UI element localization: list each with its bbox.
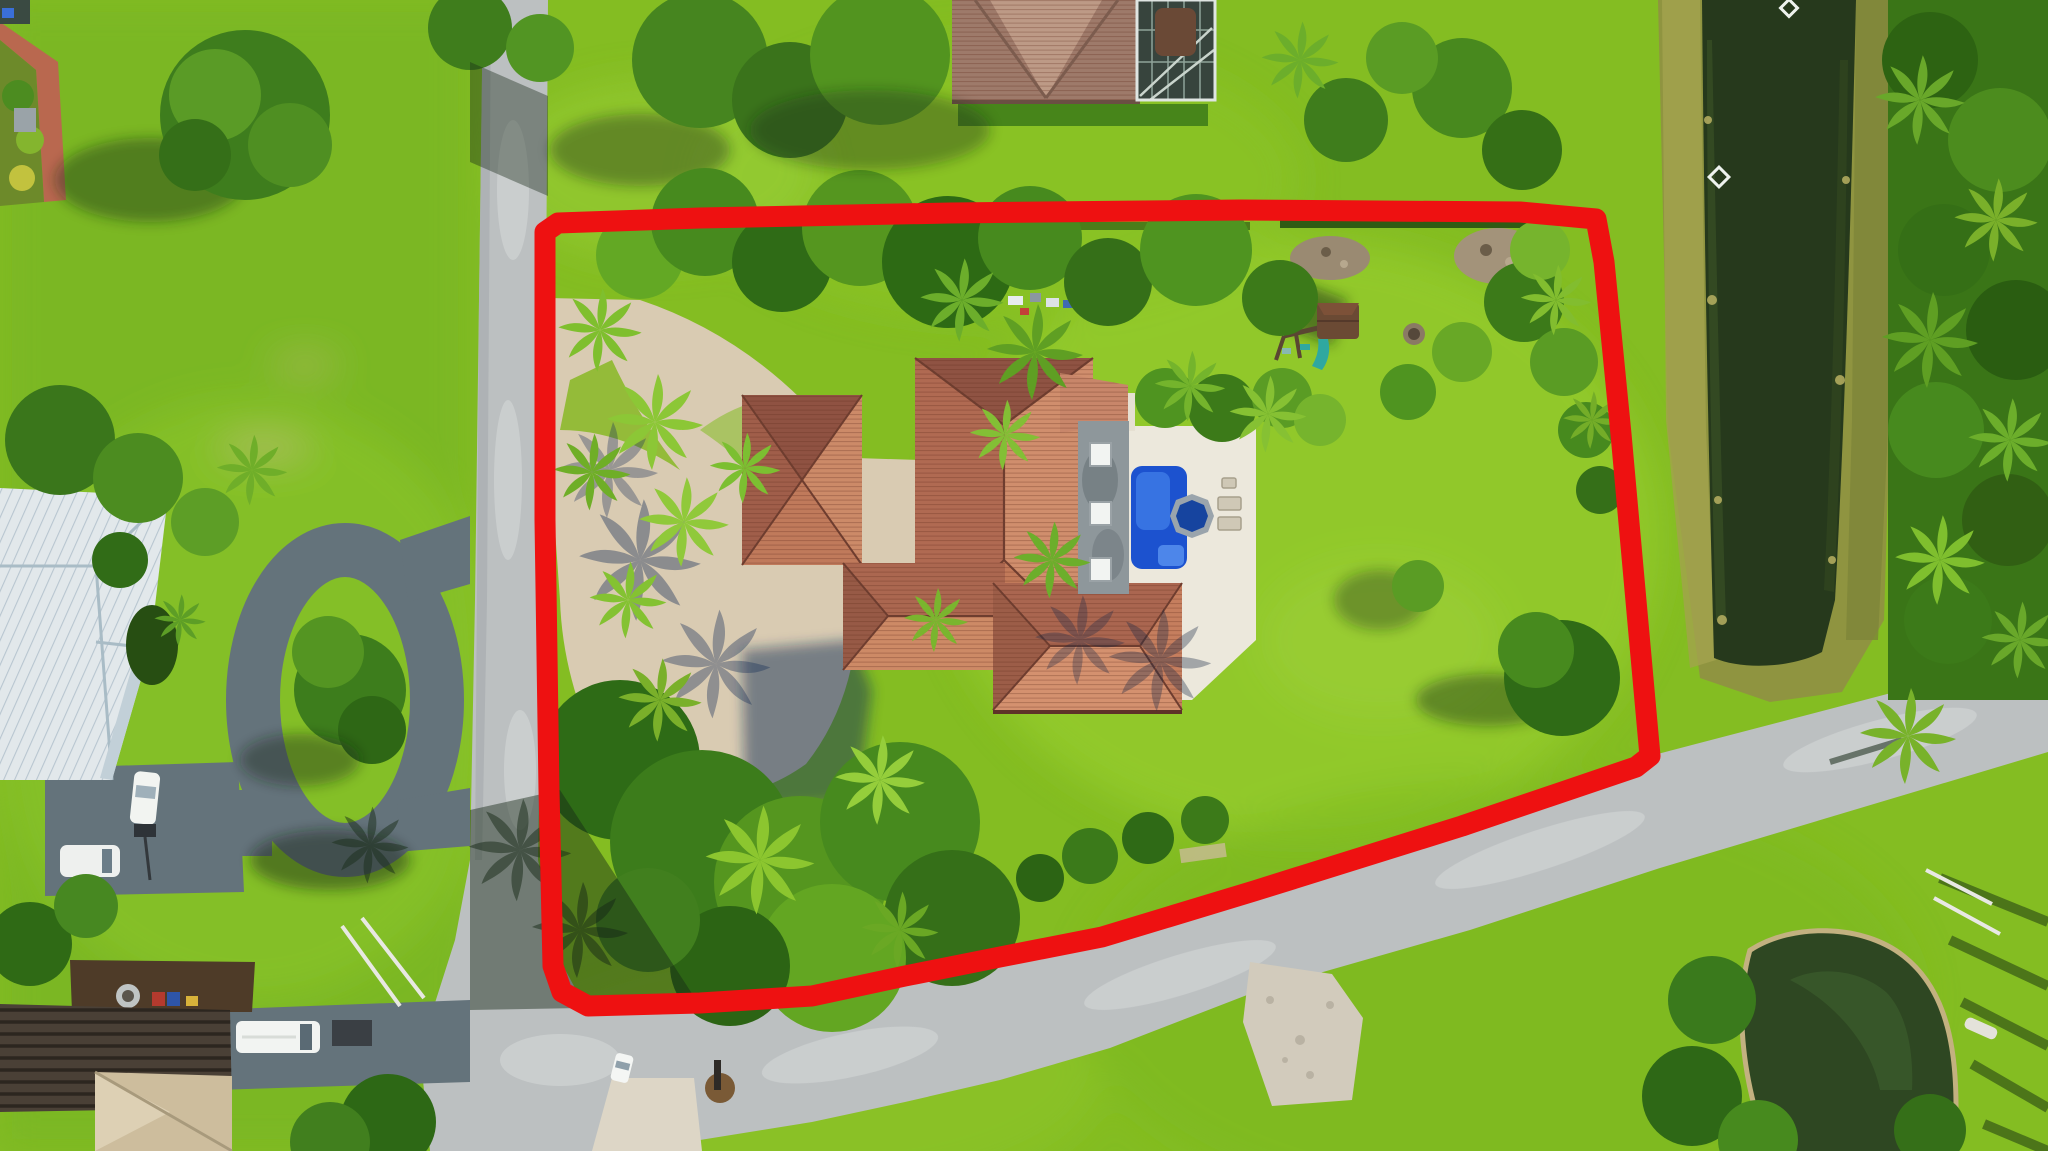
play-fort [1317, 303, 1359, 339]
trailer [332, 1020, 372, 1046]
mailbox-post [714, 1060, 721, 1090]
aerial-photo [0, 0, 2048, 1151]
fire-pit [1403, 323, 1425, 345]
parked-car [129, 771, 160, 825]
garage-roof [742, 395, 862, 565]
spa [1170, 494, 1214, 538]
parked-suv [60, 845, 120, 877]
top-neighbor-house [952, 0, 1215, 126]
white-van [236, 1021, 320, 1053]
lanai-roof [1078, 421, 1129, 594]
pool-screen-enclosure [1137, 0, 1215, 100]
skylight [1090, 443, 1111, 581]
canal [1658, 0, 1900, 702]
